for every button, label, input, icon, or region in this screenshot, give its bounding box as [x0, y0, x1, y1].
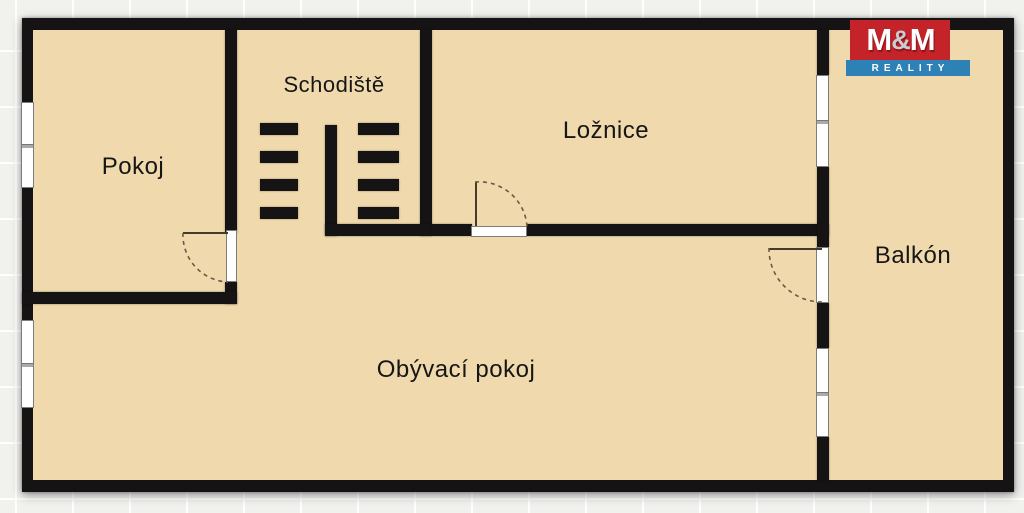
wall-schodiste-bottom — [325, 224, 432, 236]
room-label-balkon: Balkón — [875, 242, 951, 270]
wall-stair-middle — [325, 125, 337, 236]
room-label-loznice: Ložnice — [563, 117, 649, 145]
room-label-pokoj: Pokoj — [102, 153, 165, 181]
door-swing-arc — [179, 229, 237, 287]
room-label-schodiste: Schodiště — [283, 72, 384, 98]
wall-balcony-seg1 — [817, 30, 829, 75]
mm-reality-logo: M&M REALITY — [846, 18, 970, 76]
stair-step — [358, 179, 399, 191]
wall-pokoj-bottom — [22, 292, 237, 304]
stair-step — [358, 123, 399, 135]
window-divider — [22, 363, 33, 367]
window-divider — [22, 144, 33, 148]
window-livingroom-left — [21, 320, 34, 408]
stair-step — [358, 207, 399, 219]
stair-step — [260, 151, 298, 163]
window-pokoj-left — [21, 102, 34, 188]
stair-step — [260, 207, 298, 219]
window-loznice-balcony — [816, 75, 829, 167]
wall-balcony-seg2 — [817, 167, 829, 247]
wall-balcony-seg4 — [817, 437, 829, 480]
floorplan-image: Pokoj Schodiště Ložnice Balkón Obývací p… — [0, 0, 1024, 513]
wall-schodiste-loznice — [420, 30, 432, 236]
window-divider — [817, 120, 828, 124]
logo-m-right: M — [910, 22, 934, 58]
logo-brand: M&M — [850, 20, 950, 60]
stair-step — [358, 151, 399, 163]
door-swing-arc — [471, 178, 531, 238]
window-divider — [817, 392, 828, 396]
logo-m-left: M — [866, 22, 890, 58]
door-swing-arc — [765, 244, 827, 306]
wall-loznice-bottom-right — [527, 224, 829, 236]
stair-step — [260, 123, 298, 135]
window-livingroom-balcony — [816, 348, 829, 437]
logo-ampersand: & — [890, 25, 910, 56]
wall-balcony-seg3 — [817, 303, 829, 348]
logo-tagline: REALITY — [846, 60, 970, 76]
wall-pokoj-schodiste — [225, 30, 237, 233]
wall-loznice-bottom-left — [432, 224, 472, 236]
room-label-obyvaci-pokoj: Obývací pokoj — [377, 356, 536, 384]
stair-step — [260, 179, 298, 191]
